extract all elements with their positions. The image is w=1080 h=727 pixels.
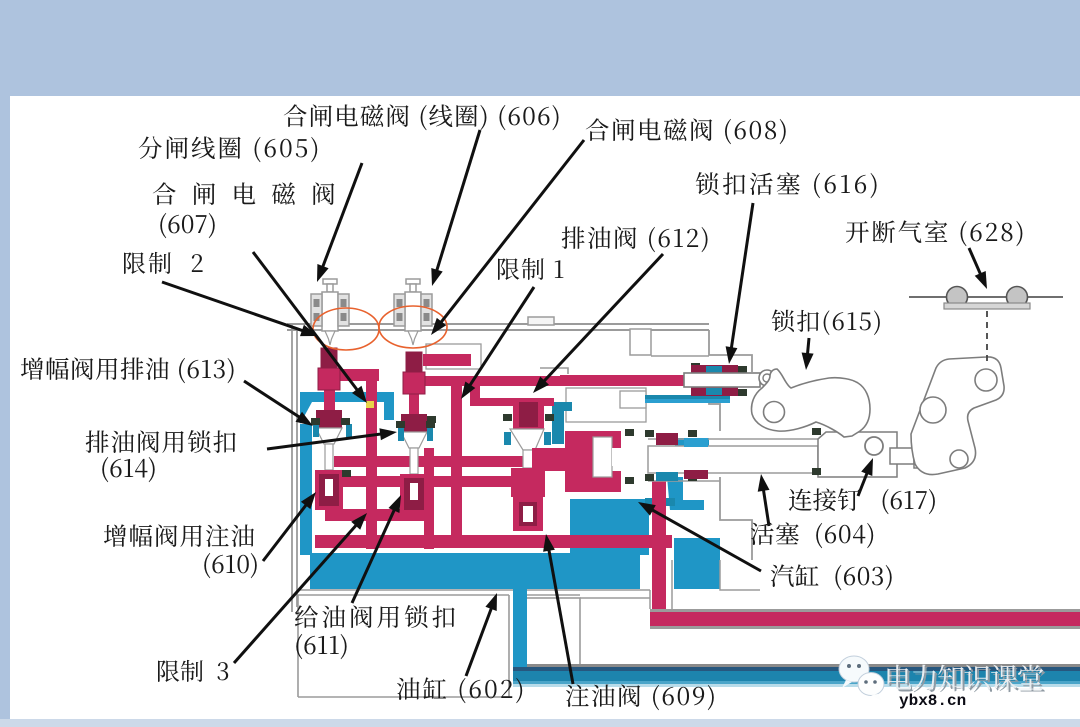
svg-text:ybx8.cn: ybx8.cn	[899, 692, 966, 710]
